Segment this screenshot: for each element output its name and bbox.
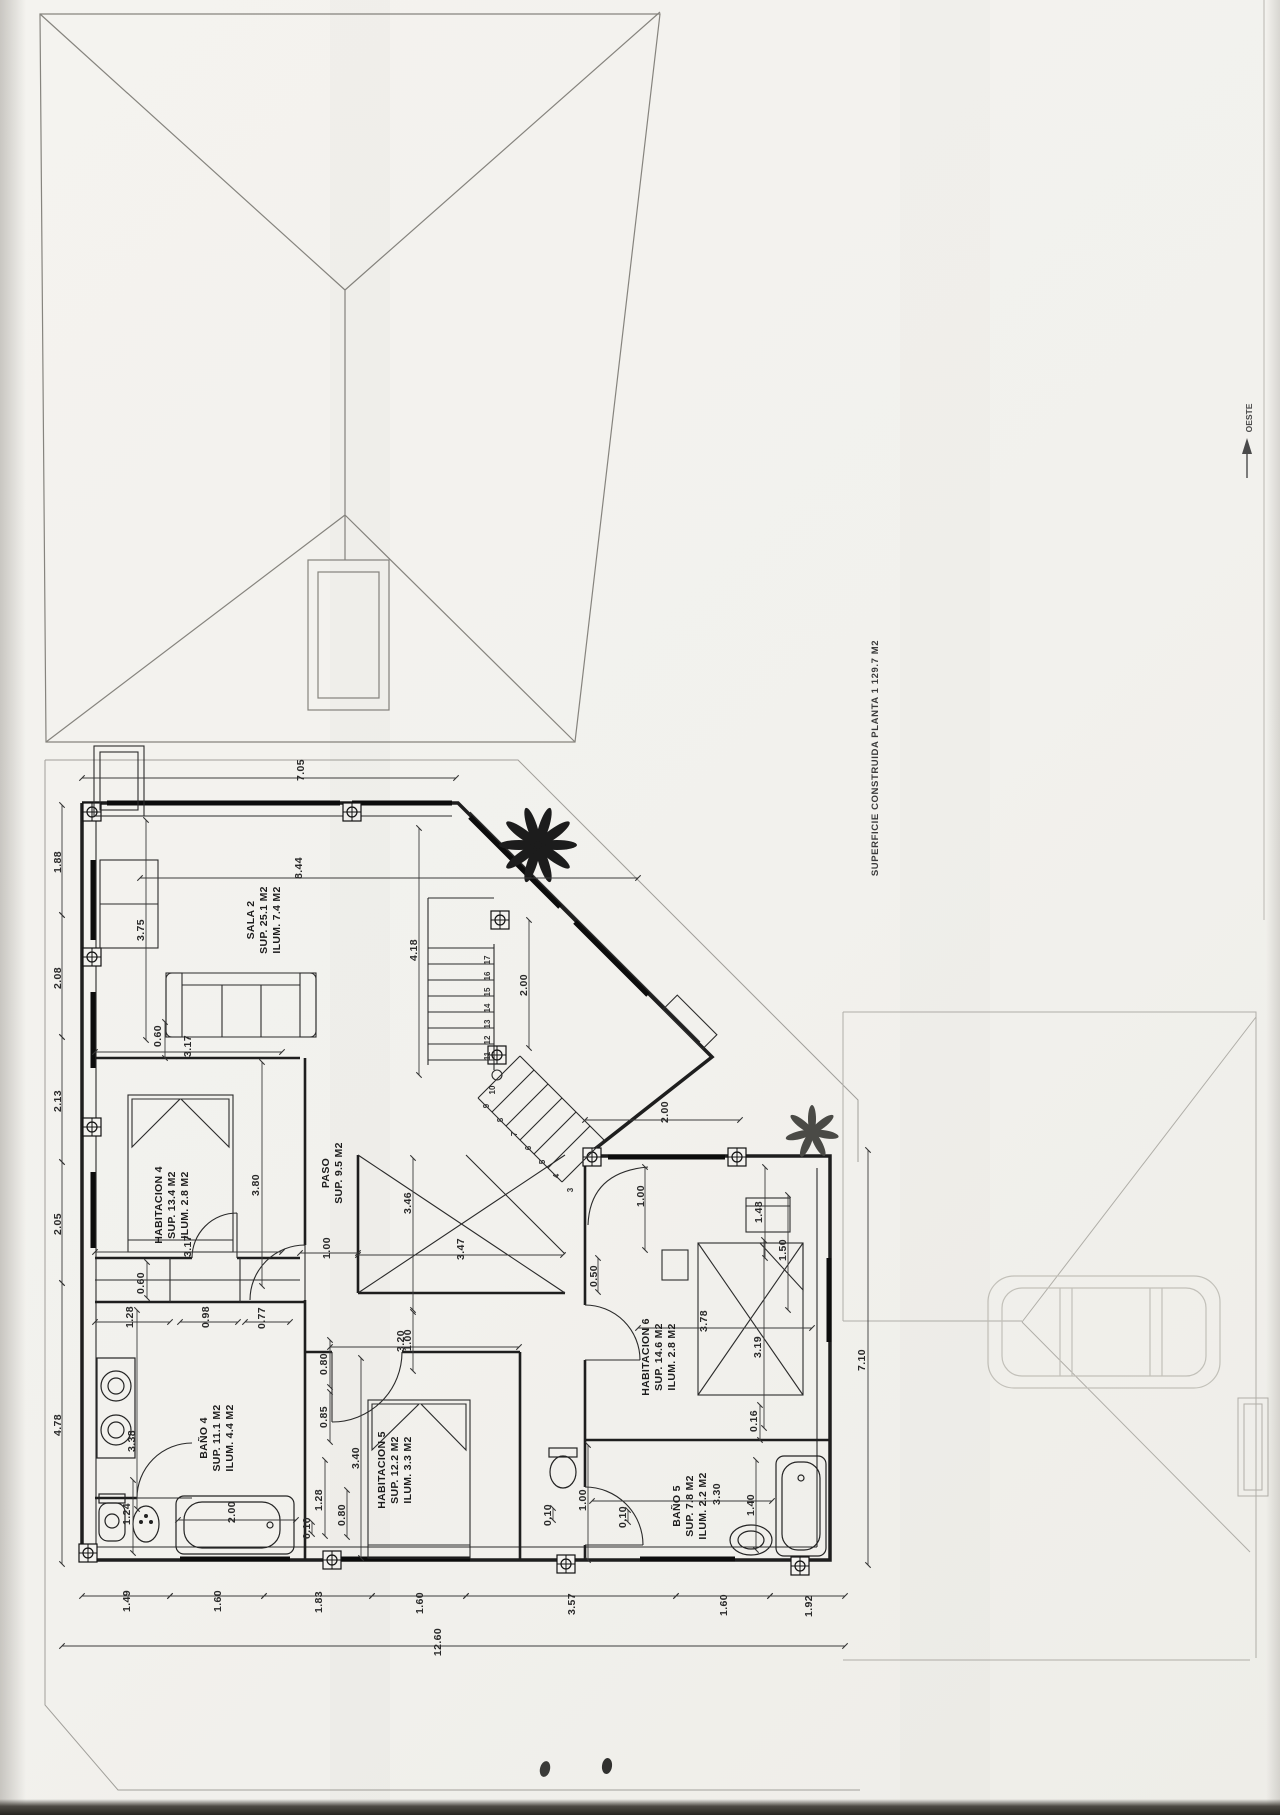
scan-streak [900,0,990,1800]
svg-text:HABITACION 4: HABITACION 4 [153,1166,165,1244]
svg-text:ILUM. 3.3 M2: ILUM. 3.3 M2 [402,1436,414,1503]
scan-edge-bottom [0,1799,1280,1815]
palm-tree-icon [499,806,577,883]
dimension-label: 0.16 [748,1410,760,1432]
room-label-habitacion-4: HABITACION 4 SUP. 13.4 M2 ILUM. 2.8 M2 [153,1166,191,1244]
svg-text:11: 11 [483,1051,492,1060]
dimension-label: 3.47 [455,1238,467,1260]
punch-hole [601,1757,613,1774]
dimension-label: 2.00 [226,1501,238,1523]
dimension-label: 3.80 [250,1174,262,1196]
svg-text:17: 17 [483,955,492,964]
svg-text:SUP. 11.1 M2: SUP. 11.1 M2 [211,1404,223,1471]
svg-text:HABITACION 6: HABITACION 6 [640,1318,652,1396]
svg-text:12: 12 [483,1035,492,1044]
dimension-label: 0.10 [542,1504,554,1526]
dimension-label: 3.75 [135,919,147,941]
svg-text:SUP. 25.1 M2: SUP. 25.1 M2 [258,886,270,954]
punch-hole [538,1760,552,1778]
dimension-label: 1.60 [718,1594,730,1616]
dimension-label: 1.92 [803,1595,815,1617]
svg-text:10: 10 [488,1085,497,1094]
dimension-label: 3.46 [402,1192,414,1214]
room-label-bano-4: BAÑO 4 SUP. 11.1 M2 ILUM. 4.4 M2 [197,1404,236,1471]
roof-edge-detail [1238,1398,1268,1496]
dimension-label: 1.50 [777,1239,789,1261]
orientation-arrow: OESTE [1242,403,1254,478]
dimension-label: 1.60 [212,1590,224,1612]
svg-text:16: 16 [483,971,492,980]
dimension-label: 1.28 [124,1306,136,1328]
dimension-label: 3.78 [698,1310,710,1332]
svg-text:BAÑO 5: BAÑO 5 [670,1485,683,1526]
dimension-label: 1.83 [313,1591,325,1613]
site-boundary [45,760,860,1790]
room-label-sala-2: SALA 2 SUP. 25.1 M2 ILUM. 7.4 M2 [245,886,283,954]
svg-text:3: 3 [566,1187,575,1192]
svg-text:15: 15 [483,987,492,996]
dimension-label: 0.60 [135,1272,147,1294]
room-label-bano-5: BAÑO 5 SUP. 7.8 M2 ILUM. 2.2 M2 [670,1472,709,1539]
dimension-label: 3.20 [395,1330,407,1352]
dimension-label: 1.00 [635,1185,647,1207]
dimension-label: 0.85 [318,1406,330,1428]
staircase [428,898,604,1182]
dimension-label: 3.17 [182,1035,194,1057]
svg-text:4: 4 [552,1173,561,1178]
dimension-label: 2.00 [659,1101,671,1123]
svg-text:SUP. 12.2 M2: SUP. 12.2 M2 [389,1436,401,1504]
svg-text:6: 6 [524,1145,533,1150]
scan-edge-right [1266,0,1280,1815]
svg-text:9: 9 [482,1103,491,1108]
dimension-label: 3.38 [126,1430,138,1452]
built-area-note: SUPERFICIE CONSTRUIDA PLANTA 1 129.7 M2 [870,640,881,876]
dimension-label: 2.00 [518,974,530,996]
dimension-label: 0.10 [617,1506,629,1528]
dimension-label: 1.40 [745,1494,757,1516]
dimension-label: 2.13 [52,1090,64,1112]
scan-edge-left [0,0,26,1815]
dimension-label: 0.10 [301,1517,313,1539]
dimension-label: 1.24 [121,1503,133,1525]
scan-streak [330,0,390,1800]
dimension-label: 1.60 [414,1592,426,1614]
exterior-walls [82,803,830,1560]
dimension-label: 3.19 [752,1336,764,1358]
svg-text:ILUM. 2.8 M2: ILUM. 2.8 M2 [666,1323,678,1390]
dimension-label: 1.28 [313,1489,325,1511]
dimension-label: 0.80 [318,1353,330,1375]
svg-text:SALA 2: SALA 2 [245,901,257,940]
dimension-label: 3.57 [566,1593,578,1615]
bed-habitacion-6 [662,1198,803,1395]
dimension-label: 1.49 [121,1590,133,1612]
dimension-label: 4.18 [408,939,420,961]
svg-text:5: 5 [538,1159,547,1164]
svg-text:ILUM. 7.4 M2: ILUM. 7.4 M2 [271,886,283,953]
scanned-floor-plan-page: 7.05 8.44 3.75 4.18 2.00 1.88 2.08 2.13 … [0,0,1280,1815]
dimension-label: 0.50 [588,1265,600,1287]
dimension-label: 1.00 [577,1489,589,1511]
dimension-label: 0.98 [200,1306,212,1328]
svg-text:ILUM. 2.8 M2: ILUM. 2.8 M2 [179,1171,191,1238]
dimension-label: 2.08 [52,967,64,989]
dimension-label: 2.05 [52,1213,64,1235]
svg-text:ILUM. 2.2 M2: ILUM. 2.2 M2 [697,1472,709,1539]
dimension-label: 12.60 [432,1628,444,1656]
room-label-habitacion-6: HABITACION 6 SUP. 14.6 M2 ILUM. 2.8 M2 [640,1318,678,1396]
svg-text:SUP. 14.6 M2: SUP. 14.6 M2 [653,1323,665,1391]
dimension-label: 8.44 [293,857,305,879]
dimension-label: 7.10 [856,1349,868,1371]
palm-tree-icon [785,1105,839,1158]
north-arrow-icon [1242,438,1252,454]
dimension-label: 0.77 [256,1307,268,1329]
dimension-label: 0.60 [152,1025,164,1047]
svg-text:7: 7 [510,1131,519,1136]
dimension-label: 1.88 [52,851,64,873]
orientation-label: OESTE [1244,403,1254,432]
svg-text:14: 14 [483,1003,492,1012]
dimension-label: 4.78 [52,1414,64,1436]
svg-text:SUP. 13.4 M2: SUP. 13.4 M2 [166,1171,178,1239]
svg-text:ILUM. 4.4 M2: ILUM. 4.4 M2 [224,1404,236,1471]
car-outline [988,1276,1220,1388]
svg-text:8: 8 [496,1117,505,1122]
svg-text:BAÑO 4: BAÑO 4 [197,1417,210,1458]
dimension-label: 3.30 [711,1483,723,1505]
svg-text:SUP. 7.8 M2: SUP. 7.8 M2 [684,1475,696,1536]
svg-text:13: 13 [483,1019,492,1028]
dimension-label: 7.05 [295,759,307,781]
dimension-label: 1.48 [753,1201,765,1223]
porch-bench [663,995,717,1049]
